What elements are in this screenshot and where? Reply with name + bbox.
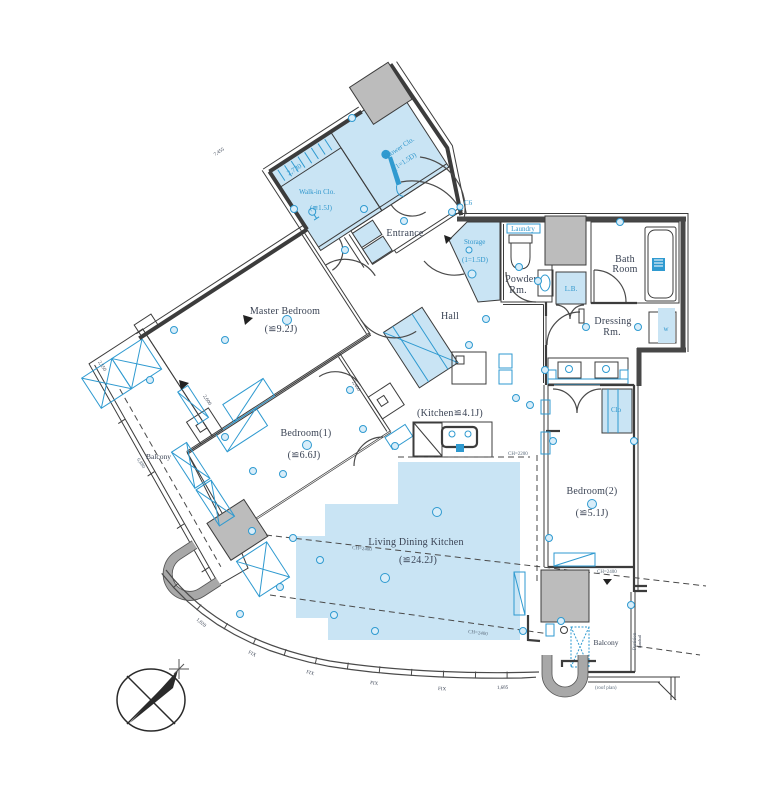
- svg-text:Storage: Storage: [464, 238, 485, 246]
- svg-text:1,685: 1,685: [497, 686, 509, 691]
- svg-text:FIX: FIX: [438, 687, 447, 692]
- svg-text:Balcony: Balcony: [594, 638, 619, 647]
- svg-text:Living Dining Kitchen: Living Dining Kitchen: [368, 537, 463, 548]
- svg-text:Clo: Clo: [611, 406, 622, 414]
- svg-text:Entrance: Entrance: [386, 228, 423, 239]
- svg-text:CH=2200: CH=2200: [508, 452, 528, 457]
- svg-text:(≌5.1J): (≌5.1J): [576, 508, 609, 519]
- svg-text:(≌9.2J): (≌9.2J): [265, 324, 298, 335]
- svg-text:Bedroom(1): Bedroom(1): [281, 428, 332, 439]
- svg-text:Rm.: Rm.: [603, 327, 621, 338]
- svg-text:Master Bedroom: Master Bedroom: [250, 306, 320, 317]
- svg-text:(Kitchen≌4.1J): (Kitchen≌4.1J): [417, 408, 483, 419]
- svg-text:C6: C6: [464, 199, 473, 207]
- svg-text:Room: Room: [612, 264, 637, 275]
- svg-text:Hall: Hall: [441, 311, 459, 322]
- svg-text:Walk-in Clo.: Walk-in Clo.: [299, 188, 335, 196]
- svg-text:(roof plan): (roof plan): [595, 686, 617, 691]
- svg-text:handrail: handrail: [637, 634, 642, 648]
- svg-text:L.B.: L.B.: [565, 285, 578, 293]
- svg-text:(≌1.5J): (≌1.5J): [310, 204, 333, 212]
- svg-text:Laundry: Laundry: [511, 225, 535, 233]
- svg-text:(≌6.6J): (≌6.6J): [288, 450, 321, 461]
- svg-text:Dressing: Dressing: [594, 316, 631, 327]
- svg-text:(1=1.5D): (1=1.5D): [462, 256, 489, 264]
- svg-text:Bedroom(2): Bedroom(2): [567, 486, 618, 497]
- svg-text:Balcony: Balcony: [146, 452, 171, 461]
- svg-text:Powder: Powder: [505, 274, 537, 285]
- svg-text:CH=2400: CH=2400: [597, 570, 617, 575]
- svg-text:(≌24.2J): (≌24.2J): [399, 555, 437, 566]
